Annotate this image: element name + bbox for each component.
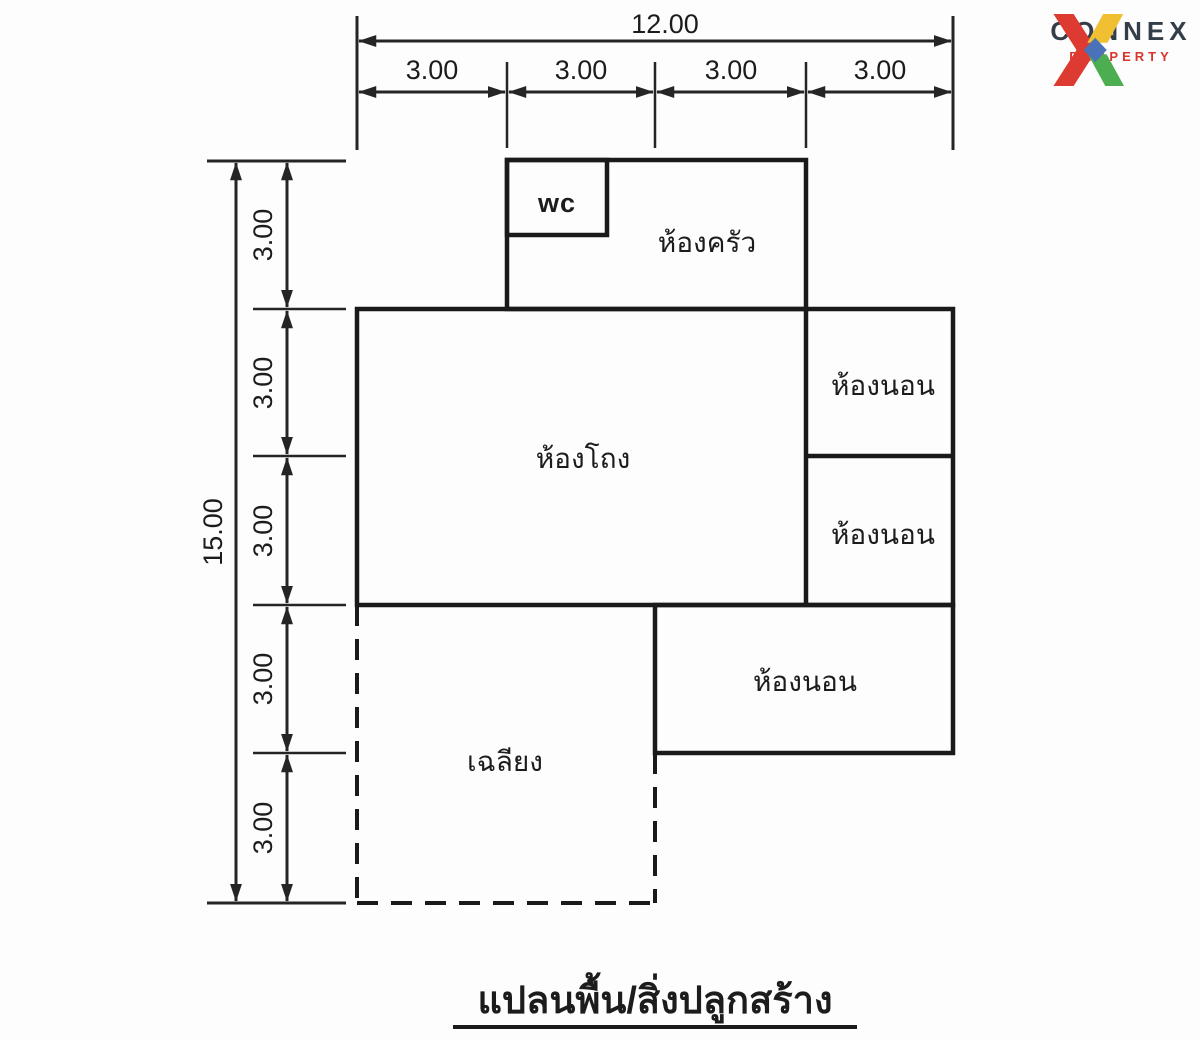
left-dim-seg4-label: 3.00 [248,653,278,706]
walls-group [357,160,953,753]
logo-x-yellow-stroke [1087,14,1123,43]
left-dim-seg2-label: 3.00 [248,357,278,410]
room-label-bedroom-mid: ห้องนอน [831,519,935,550]
room-label-hall: ห้องโถง [536,442,631,474]
left-dim-seg5-label: 3.00 [248,802,278,855]
top-dim-seg2-label: 3.00 [555,55,608,85]
room-label-porch: เฉลียง [467,746,543,777]
top-dim-seg1-label: 3.00 [406,55,459,85]
top-dim-total-label: 12.00 [631,9,699,39]
connex-logo: CONNEX PROPERTY [1046,14,1196,64]
top-dim-seg4-label: 3.00 [854,55,907,85]
left-dim-total-label: 15.00 [198,498,228,566]
plan-title: แปลนพื้น/สิ่งปลูกสร้าง [477,972,832,1024]
top-dim-seg3-label: 3.00 [705,55,758,85]
room-label-bedroom-top: ห้องนอน [831,370,935,401]
left-dim-seg3-label: 3.00 [248,505,278,558]
floor-plan-drawing: 12.00 3.00 3.00 3.00 3.00 15.00 3.00 3.0… [0,0,1200,1040]
connex-x-icon [1046,14,1130,86]
left-dim-seg1-label: 3.00 [248,209,278,262]
room-label-kitchen: ห้องครัว [658,227,756,258]
room-label-wc: wc [537,188,576,218]
floor-plan-page: 12.00 3.00 3.00 3.00 3.00 15.00 3.00 3.0… [0,0,1200,1040]
room-label-bedroom-bottom: ห้องนอน [753,666,857,697]
